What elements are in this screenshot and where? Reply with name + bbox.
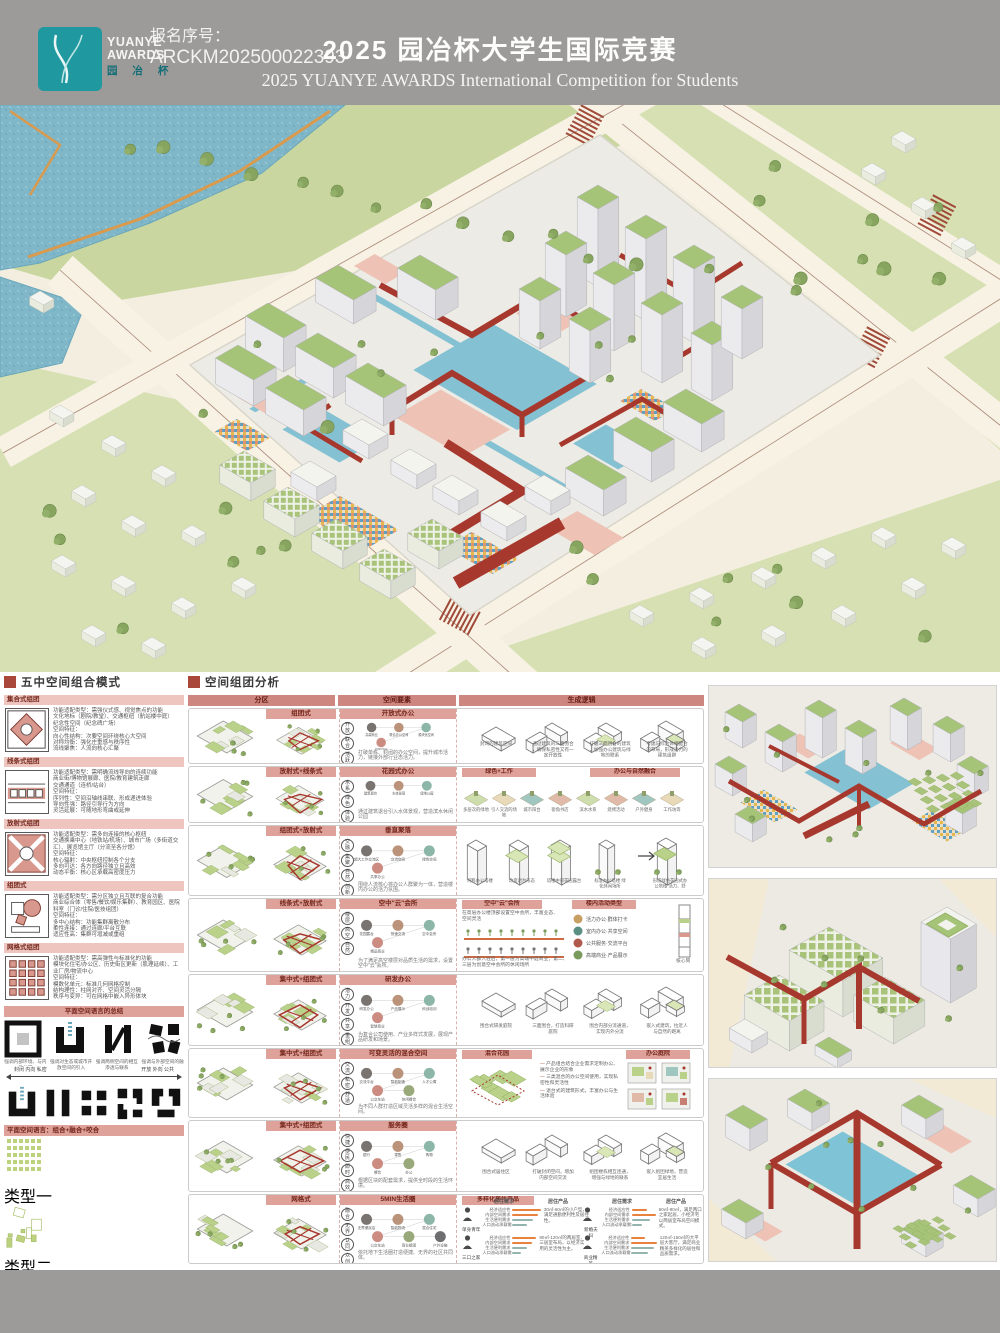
svg-text:模块化空间: 模块化空间 [418, 732, 434, 737]
theme-note: 依托地下生活圈打造便捷、无界的社区共同体。 [358, 1251, 455, 1263]
keyword: 众创 [341, 1253, 354, 1263]
zone-axon [189, 709, 263, 763]
mode-banner: 集中式+组团式 [266, 975, 336, 985]
analysis-row: 组团式 开放式办公 开放联合活跃参与 高端商业联合办公空间模块化空间开放空间 打… [188, 708, 704, 764]
keyword: 联合 [341, 737, 354, 750]
elements-cell: 花园式办公 水系绿色体验 建筑退台水体景观绿地公园 通过建筑退台引入水体景观，营… [339, 767, 457, 822]
keyword-circles: 潜力开发共享重组 [341, 988, 354, 1045]
keyword: 交融 [341, 839, 354, 852]
summary-row2 [4, 1084, 184, 1122]
svg-text:纯粹办公塔楼: 纯粹办公塔楼 [467, 877, 493, 884]
zone-axon [189, 899, 263, 971]
keyword: 活跃 [341, 752, 354, 763]
zone-axon [189, 975, 263, 1045]
keyword-circles: 开放联合活跃参与 [341, 722, 354, 763]
persona-needs: 经济适应性内部空间需求生活便利需求人口流动承载需求 [482, 1207, 541, 1227]
mode-banner: 集合式组团 [4, 695, 184, 705]
keyword: 私密 [341, 1077, 354, 1090]
masterplan-render [0, 105, 1000, 672]
mode-description: 功能适配类型：需强仪式感、视觉焦点的功能文化地标（剧院/教堂）、交通枢纽（航站楼… [53, 708, 173, 754]
mode-section: 线条式组团 功能适配类型：需明确流线导向的连续功能商业街/博物馆展廊、医院/教育… [4, 757, 184, 816]
analysis-row: 线条式+放射式 空中"云"会所 楼层高空自然 花园露台快速交流空中会所精品商业 … [188, 898, 704, 972]
mode-section: 集合式组团 功能适配类型：需强仪式感、视觉焦点的功能文化地标（剧院/教堂）、交通… [4, 695, 184, 754]
theme-banner: 可变灵活的混合空间 [340, 1049, 456, 1059]
svg-text:购物: 购物 [426, 1152, 434, 1157]
cluster-diamond-icon [5, 708, 49, 752]
persona-needs: 经济适应性内部空间需求生活便利需求人口流动承载需求 [602, 1207, 656, 1227]
mode-banner: 集中式+组团式 [266, 1049, 336, 1059]
mode-banner: 集中式+组团式 [266, 1121, 336, 1131]
keyword: 交流 [341, 1062, 354, 1075]
svg-text:封闭的建筑空间: 封闭的建筑空间 [480, 740, 513, 747]
mode-description: 功能适配类型：需明确流线导向的连续功能商业街/博物馆展廊、医院/教育建筑走廊交通… [53, 770, 158, 816]
svg-text:定开放性: 定开放性 [544, 752, 563, 759]
svg-text:公共服务·交流平台: 公共服务·交流平台 [586, 940, 628, 947]
svg-text:地: 地 [502, 812, 507, 818]
elements-cell: 服务圈 快捷便民即时高效 银行零售购物餐饮办公 根据区块的配套需求，提供全时段的… [339, 1121, 457, 1191]
title-square-icon [4, 676, 16, 688]
persona: 商业精英 经济适应性内部空间需求生活便利需求人口流动承载需求 120㎡-150㎡… [582, 1235, 703, 1263]
svg-text:增强与绿地的联系: 增强与绿地的联系 [592, 1174, 629, 1181]
svg-text:地的联系: 地的联系 [601, 752, 620, 759]
svg-text:户外健身: 户外健身 [635, 806, 653, 813]
generation-logic-cell: 围合式研发庭院三面围合，打造科研庭院围合内部分流通道，实现内外分流嵌入式建筑，拉… [460, 975, 703, 1045]
keyword: 楼层 [341, 912, 354, 925]
elements-cell: 5MIN生活圈 融合无界认同众创 无界便民店智能物流混合住宅公交车站商业组团户外… [339, 1195, 457, 1263]
plan-type: 类型一 [4, 1136, 184, 1207]
plan-type: 类型二 [4, 1207, 184, 1278]
theme-banner: 花园式办公 [340, 767, 456, 777]
svg-text:空中会所: 空中会所 [422, 931, 437, 936]
mode-banner: 线条式+放射式 [266, 899, 336, 909]
zone-axon [189, 826, 263, 895]
mode-description: 功能适配类型：需多向连接的核心枢纽交通换乘中心（地铁站/机场）、城市广场（多街道… [53, 832, 183, 878]
analysis-row: 组团式+放射式 垂直聚落 交融集聚自然创新 超大工作交流区交流空间绿色空间共享办… [188, 825, 704, 896]
svg-text:联合办公空间: 联合办公空间 [389, 732, 408, 737]
render-water-plaza [708, 1078, 997, 1262]
keyword: 舒适 [341, 1092, 354, 1105]
keyword: 高空 [341, 927, 354, 940]
keyword: 潜力 [341, 988, 354, 1001]
mode-axon: 放射式+线条式 [266, 767, 336, 822]
svg-text:零售: 零售 [394, 1152, 402, 1157]
core-tube-label: 核心筒 [676, 959, 696, 965]
mode-axon: 网格式 [266, 1195, 336, 1263]
middle-column-title: 空间组团分析 [188, 672, 704, 692]
svg-text:智能物流: 智能物流 [391, 1225, 406, 1230]
svg-text:烧烤活动: 烧烤活动 [607, 806, 625, 813]
keyword: 体验 [341, 810, 354, 822]
svg-text:活力办公·群体打卡: 活力办公·群体打卡 [586, 916, 628, 923]
mode-banner: 线条式组团 [4, 757, 184, 767]
svg-text:科创培训: 科创培训 [422, 1006, 437, 1011]
analysis-row: 集中式+组团式 可变灵活的混合空间 交流私密舒适 交流平台智能制造人才公寓公交车… [188, 1048, 704, 1118]
theme-note: 打破单栋、封闭的办公空间，提升城市活力，链接外部行业态活力。 [358, 751, 455, 763]
mode-axon: 集中式+组团式 [266, 975, 336, 1045]
elements-cell: 研发办公 潜力开发共享重组 研发办公产品展示科创培训智慧商业 为复合公司使用、产… [339, 975, 457, 1045]
persona-needs: 经济适应性内部空间需求生活便利需求人口流动承载需求 [482, 1235, 536, 1255]
svg-text:水体景观: 水体景观 [392, 791, 406, 796]
keyword: 创新 [341, 884, 354, 895]
theme-banner: 垂直聚落 [340, 826, 456, 836]
openness-axis: 封闭 内向 私密 开放 外向 公共 [6, 1072, 182, 1082]
summary-banner: 平面空间语言的总结 [4, 1006, 184, 1017]
keyword: 水系 [341, 780, 354, 793]
svg-text:花园露台: 花园露台 [359, 931, 374, 936]
svg-text:化休闲场所: 化休闲场所 [599, 883, 621, 890]
theme-banner: 5MIN生活圈 [340, 1195, 456, 1205]
col-header-elements: 空间要素 [338, 695, 456, 706]
svg-text:交流空间: 交流空间 [391, 857, 406, 862]
theme-banner: 开放式办公 [340, 709, 456, 719]
svg-text:城市阳台: 城市阳台 [523, 806, 540, 813]
zone-axon [189, 1049, 263, 1117]
generation-logic-cell: 绿色+工作 办公与自然融合 多层次的绿地引人交流的场地城市阳台街角书店滨水水系烧… [460, 767, 703, 822]
bottom-gray-margin [0, 1270, 1000, 1333]
theme-note: 为了满足高空楼层对品质生活的需求，设置空中"云"会所。 [358, 959, 455, 971]
svg-text:街角书店: 街角书店 [551, 806, 569, 813]
keyword-circles: 楼层高空自然 [341, 912, 354, 955]
keyword: 高效 [341, 1179, 354, 1191]
mode-banner: 网格式组团 [4, 943, 184, 953]
svg-text:围合式居住区: 围合式居住区 [482, 1168, 510, 1175]
keyword: 重组 [341, 1033, 354, 1045]
poster-root: YUANYE AWARDS 园 冶 杯 报名序号： ARCKM202500022… [0, 0, 1000, 1333]
svg-text:快速交流: 快速交流 [391, 931, 406, 936]
mode-axon: 集中式+组团式 [266, 1049, 336, 1117]
mode-axon: 集中式+组团式 [266, 1121, 336, 1191]
svg-text:宜居生活: 宜居生活 [658, 1174, 677, 1181]
persona-col-header: 居住产品 [666, 1198, 686, 1205]
persona-product: 120㎡-150㎡的大平层大客厅，满足商业精英多样化的居住和品质需求。 [660, 1235, 703, 1256]
keyword-circles: 快捷便民即时高效 [341, 1134, 354, 1191]
mode-axon: 组团式+放射式 [266, 826, 336, 895]
analysis-row: 集中式+组团式 研发办公 潜力开发共享重组 研发办公产品展示科创培训智慧商业 为… [188, 974, 704, 1046]
svg-text:实现内外分流: 实现内外分流 [596, 1028, 624, 1035]
summary-row1 [4, 1020, 184, 1058]
persona: 三口之家 经济适应性内部空间需求生活便利需求人口流动承载需求 90㎡-120㎡的… [462, 1235, 585, 1261]
summary-diagrams: 强调内部环境、与内外分隔强调对生态或城市开放空间的引入强调两侧空间的相互渗透与联… [4, 1020, 184, 1122]
mode-banner: 组团式+放射式 [266, 826, 336, 836]
generation-logic-cell: 混合花园 — 产品组合结合企业需求定制办公、展示企业的形象— 三类混合的办公空间… [460, 1049, 703, 1117]
svg-text:庭院: 庭院 [548, 1028, 558, 1035]
competition-title-cn: 2025 园冶杯大学生国际竞赛 [0, 30, 1000, 67]
svg-text:公交车站: 公交车站 [370, 1096, 385, 1101]
mode-section: 网格式组团 功能适配类型：需高弹性与标准化的功能模块化住宅/办公区、历史街区更新… [4, 943, 184, 1002]
keyword: 无界 [341, 1223, 354, 1236]
svg-text:高端商业: 高端商业 [365, 732, 378, 737]
mode-axon: 线条式+放射式 [266, 899, 336, 971]
grouped-icon [5, 894, 49, 938]
persona-col-header: 居住需求 [494, 1198, 514, 1205]
elements-cell: 空中"云"会所 楼层高空自然 花园露台快速交流空中会所精品商业 为了满足高空楼层… [339, 899, 457, 971]
analysis-panel: 五中空间组合模式 集合式组团 功能适配类型：需强仪式感、视觉焦点的功能文化地标（… [0, 672, 1000, 1270]
keyword: 便民 [341, 1149, 354, 1162]
gen-note: 在高层办公楼顶部设置空中会所，丰富业态、空间灵活 [462, 911, 558, 922]
left-title-text: 五中空间组合模式 [21, 674, 121, 690]
svg-text:人才公寓: 人才公寓 [422, 1079, 437, 1084]
gen-note: 办公人群入驻后，第一层为高端中庭商业；第二、三层为创意空中会所的休闲场所 [462, 957, 572, 968]
right-column [708, 672, 998, 1270]
language-banner: 平面空间语言：组合+融合+咬合 [4, 1125, 184, 1136]
elements-cell: 垂直聚落 交融集聚自然创新 超大工作交流区交流空间绿色空间共享办公 围绕人流核心… [339, 826, 457, 895]
svg-text:塔楼中部花园露台: 塔楼中部花园露台 [547, 877, 581, 884]
mode-axon: 组团式 [266, 709, 336, 763]
generation-logic-cell: 围合式居住区打破封闭空间，增加内部空间交流组团楼栋相互连通，增强与绿地的联系嵌入… [460, 1121, 703, 1191]
keyword-circles: 交流私密舒适 [341, 1062, 354, 1105]
analysis-rows: 组团式 开放式办公 开放联合活跃参与 高端商业联合办公空间模块化空间开放空间 打… [188, 708, 704, 1264]
gen-subtitle: 办公与自然融合 [590, 768, 680, 777]
keyword: 集聚 [341, 854, 354, 867]
svg-text:智慧商业: 智慧商业 [370, 1023, 385, 1028]
left-column: 五中空间组合模式 集合式组团 功能适配类型：需强仪式感、视觉焦点的功能文化地标（… [4, 672, 184, 1333]
persona-product: 60㎡-90㎡，满足两口之家起居，小经济宅以两居室布局空间模式。 [659, 1207, 703, 1228]
svg-text:公交车站: 公交车站 [370, 1242, 385, 1247]
generation-logic-cell: 封闭的建筑空间通过建筑的三面围合，确保私密性又有一定开放性打破三面围合的建筑，加… [460, 709, 703, 763]
svg-text:休闲餐饮: 休闲餐饮 [402, 1096, 417, 1101]
zone-axon [189, 1121, 263, 1191]
persona-col-header: 居住产品 [548, 1198, 568, 1205]
axis-right-label: 开放 外向 公共 [139, 1066, 176, 1073]
keyword: 开发 [341, 1003, 354, 1016]
svg-text:改变退台形态: 改变退台形态 [509, 877, 535, 884]
svg-text:银行: 银行 [363, 1152, 371, 1157]
zone-axon [189, 767, 263, 822]
gen-subtitle: 绿色+工作 [462, 768, 536, 777]
svg-text:餐饮: 餐饮 [374, 1169, 382, 1174]
svg-text:内部空间交流: 内部空间交流 [539, 1174, 567, 1181]
render-aerial-overview [708, 685, 997, 868]
axis-left-label: 封闭 内向 私密 [12, 1066, 49, 1073]
mode-banner: 放射式+线条式 [266, 767, 336, 777]
theme-note: 根据区块的配套需求，提供全时段的生活环境。 [358, 1179, 455, 1191]
svg-text:公塔楼 活力、舒: 公塔楼 活力、舒 [654, 883, 686, 890]
persona: 单身青年 经济适应性内部空间需求生活便利需求人口流动承载需求 30㎡-60㎡的小… [462, 1207, 590, 1233]
svg-text:超大工作交流区: 超大工作交流区 [354, 857, 380, 862]
keyword: 融合 [341, 1208, 354, 1221]
middle-column: 空间组团分析 分区 空间要素 生成逻辑 组团式 开放式办公 开放联合活跃参与 高… [188, 672, 704, 1264]
svg-text:高端商业·产品展示: 高端商业·产品展示 [586, 952, 628, 959]
keyword: 即时 [341, 1164, 354, 1177]
svg-text:与自然的距离: 与自然的距离 [653, 1028, 681, 1035]
svg-text:无界便民店: 无界便民店 [358, 1225, 376, 1230]
svg-text:精品商业: 精品商业 [370, 948, 385, 953]
theme-banner: 空中"云"会所 [340, 899, 456, 909]
left-column-title: 五中空间组合模式 [4, 672, 184, 692]
svg-text:研发办公: 研发办公 [359, 1006, 374, 1011]
mode-section: 组团式 功能适配类型：需分区独立且互联的复合功能商业综合体（零售/餐饮/娱乐集群… [4, 881, 184, 940]
gen-subtitle: 空中"云"会所 [462, 900, 542, 909]
title-square-icon [188, 676, 200, 688]
svg-text:智能制造: 智能制造 [391, 1079, 406, 1084]
theme-note: 围绕人流核心将办公人群聚为一体，营造楼内办公的活力氛围。 [358, 883, 455, 895]
keyword: 快捷 [341, 1134, 354, 1147]
middle-title-text: 空间组团分析 [205, 674, 280, 690]
elements-cell: 开放式办公 开放联合活跃参与 高端商业联合办公空间模块化空间开放空间 打破单栋、… [339, 709, 457, 763]
persona-name: 单身青年 [462, 1227, 480, 1233]
competition-title-en: 2025 YUANYE AWARDS International Competi… [0, 70, 1000, 91]
keyword-circles: 融合无界认同众创 [341, 1208, 354, 1263]
analysis-row: 集中式+组团式 服务圈 快捷便民即时高效 银行零售购物餐饮办公 根据区块的配套需… [188, 1120, 704, 1192]
svg-text:建筑退台: 建筑退台 [364, 791, 377, 796]
elements-cell: 可变灵活的混合空间 交流私密舒适 交流平台智能制造人才公寓公交车站休闲餐饮 为不… [339, 1049, 457, 1117]
render-modular-cluster [708, 878, 997, 1068]
generation-logic-cell: 多样化居住产品居住需求居住产品居住需求居住产品 单身青年 经济适应性内部空间需求… [460, 1195, 703, 1263]
radial-icon [5, 832, 49, 876]
svg-text:商业组团: 商业组团 [402, 1242, 417, 1247]
svg-text:建筑组群: 建筑组群 [658, 752, 677, 759]
mode-banner: 网格式 [266, 1195, 336, 1205]
mode-banner: 放射式组团 [4, 819, 184, 829]
analysis-row: 放射式+线条式 花园式办公 水系绿色体验 建筑退台水体景观绿地公园 通过建筑退台… [188, 766, 704, 823]
persona-needs: 经济适应性内部空间需求生活便利需求人口流动承载需求 [601, 1235, 657, 1255]
keyword: 认同 [341, 1238, 354, 1251]
linear-band-icon [5, 770, 49, 814]
generation-logic-cell: 空中"云"会所 在高层办公楼顶部设置空中会所，丰富业态、空间灵活 办公人群入驻后… [460, 899, 703, 971]
svg-text:多层次的绿地: 多层次的绿地 [463, 806, 489, 813]
mode-sections: 集合式组团 功能适配类型：需强仪式感、视觉焦点的功能文化地标（剧院/教堂）、交通… [4, 695, 184, 1002]
svg-text:绿地公园: 绿地公园 [420, 791, 433, 796]
keyword: 自然 [341, 869, 354, 882]
persona-name: 商业精英 [582, 1255, 599, 1263]
grid-icon [5, 956, 49, 1000]
keyword: 共享 [341, 1018, 354, 1031]
persona-product: 90㎡-120㎡的两居室、三居室布局，以经济实用的灵活性为主。 [539, 1235, 585, 1251]
theme-banner: 服务圈 [340, 1121, 456, 1131]
persona-name: 三口之家 [462, 1255, 480, 1261]
theme-note: 为不同人群打造区域灵活多样的混合生活空间。 [358, 1105, 455, 1117]
persona-col-header: 居住需求 [612, 1198, 632, 1205]
svg-text:室内办公·共享空间: 室内办公·共享空间 [586, 928, 628, 935]
mode-banner: 组团式 [4, 881, 184, 891]
mode-section: 放射式组团 功能适配类型：需多向连接的核心枢纽交通换乘中心（地铁站/机场）、城市… [4, 819, 184, 878]
generation-logic-cell: 纯粹办公塔楼改变退台形态塔楼中部花园露台标准办公塔楼 绿化休闲场所形成绿色花园式… [460, 826, 703, 895]
col-header-zones: 分区 [188, 695, 335, 706]
svg-text:交流平台: 交流平台 [359, 1079, 374, 1084]
svg-text:混合住宅: 混合住宅 [422, 1225, 437, 1230]
mode-description: 功能适配类型：需分区独立且互联的复合功能商业综合体（零售/餐饮/娱乐集群）、教育… [53, 894, 183, 940]
svg-text:滨水水系: 滨水水系 [579, 806, 597, 813]
svg-text:产品展示: 产品展示 [391, 1006, 406, 1011]
mode-banner: 组团式 [266, 709, 336, 719]
theme-note: 为复合公司使用、产业多样式发展，展现产品研发和场景。 [358, 1033, 455, 1045]
svg-text:办公: 办公 [405, 1169, 413, 1174]
zone-axon [189, 1195, 263, 1263]
svg-text:共享办公: 共享办公 [370, 874, 385, 879]
svg-text:绿色空间: 绿色空间 [422, 857, 437, 862]
theme-note: 通过建筑退台引入水体景观，营造滨水休闲公园 [358, 810, 455, 822]
keyword: 自然 [341, 942, 354, 955]
keyword-circles: 水系绿色体验 [341, 780, 354, 822]
analysis-row: 网格式 5MIN生活圈 融合无界认同众创 无界便民店智能物流混合住宅公交车站商业… [188, 1194, 704, 1264]
svg-text:围合式研发庭院: 围合式研发庭院 [480, 1022, 513, 1029]
plan-type-label: 类型一 [4, 1183, 184, 1207]
svg-text:户外设施: 户外设施 [433, 1242, 448, 1247]
col-header-logic: 生成逻辑 [459, 695, 704, 706]
keyword: 开放 [341, 722, 354, 735]
theme-banner: 研发办公 [340, 975, 456, 985]
column-header-band: 分区 空间要素 生成逻辑 [188, 695, 704, 706]
keyword: 绿色 [341, 795, 354, 808]
gen-subtitle: 楼内活动类型 [572, 900, 636, 909]
mode-description: 功能适配类型：需高弹性与标准化的功能模块化住宅/办公区、历史街区更新（肌理延续）… [53, 956, 183, 1002]
svg-text:工作坊等: 工作坊等 [663, 806, 681, 813]
keyword-circles: 交融集聚自然创新 [341, 839, 354, 895]
